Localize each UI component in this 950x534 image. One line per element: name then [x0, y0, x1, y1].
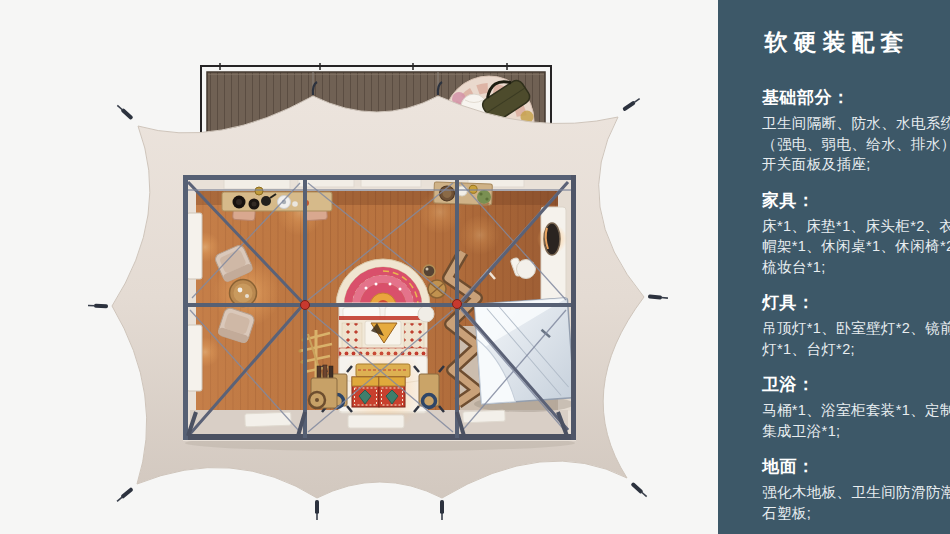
panel-title: 软硬装配套 — [718, 27, 950, 58]
section-line: 梳妆台*1; — [762, 257, 940, 278]
spec-panel: 软硬装配套 基础部分： 卫生间隔断、防水、水电系统 （强电、弱电、给水、排水）、… — [718, 0, 950, 534]
section-line: 强化木地板、卫生间防滑防潮 — [762, 482, 940, 503]
section-line: 马桶*1、浴室柜套装*1、定制 — [762, 400, 940, 421]
section-line: 吊顶灯*1、卧室壁灯*2、镜前 — [762, 318, 940, 339]
section-line: 帽架*1、休闲桌*1、休闲椅*2、 — [762, 236, 940, 257]
shower-enclosure — [475, 298, 575, 404]
hand-mirror — [423, 265, 435, 277]
spec-section-lighting: 灯具： 吊顶灯*1、卧室壁灯*2、镜前 灯*1、台灯*2; — [762, 291, 940, 359]
bed — [322, 259, 444, 432]
section-heading: 地面： — [762, 455, 940, 478]
section-line: 卫生间隔断、防水、水电系统 — [762, 113, 940, 134]
bottles — [317, 365, 333, 379]
spec-section-furniture: 家具： 床*1、床垫*1、床头柜*2、衣 帽架*1、休闲桌*1、休闲椅*2、 梳… — [762, 189, 940, 278]
section-heading: 灯具： — [762, 291, 940, 314]
section-line: （强电、弱电、给水、排水）、 — [762, 134, 940, 155]
section-line: 开关面板及插座; — [762, 154, 940, 175]
section-heading: 基础部分： — [762, 86, 940, 109]
section-line: 石塑板; — [762, 503, 940, 524]
tent-room — [183, 174, 576, 441]
spec-section-flooring: 地面： 强化木地板、卫生间防滑防潮 石塑板; — [762, 455, 940, 523]
section-heading: 卫浴： — [762, 373, 940, 396]
spec-section-basics: 基础部分： 卫生间隔断、防水、水电系统 （强电、弱电、给水、排水）、 开关面板及… — [762, 86, 940, 175]
leisure-table — [230, 280, 257, 307]
floorplan-render — [0, 0, 718, 534]
section-line: 灯*1、台灯*2; — [762, 339, 940, 360]
section-heading: 家具： — [762, 189, 940, 212]
spec-section-bathroom: 卫浴： 马桶*1、浴室柜套装*1、定制 集成卫浴*1; — [762, 373, 940, 441]
section-line: 集成卫浴*1; — [762, 421, 940, 442]
spec-sections: 基础部分： 卫生间隔断、防水、水电系统 （强电、弱电、给水、排水）、 开关面板及… — [762, 86, 940, 523]
section-line: 床*1、床垫*1、床头柜*2、衣 — [762, 216, 940, 237]
pouf — [418, 306, 434, 322]
wheel-chest — [309, 378, 337, 408]
floorplan-svg — [0, 0, 718, 534]
page: 软硬装配套 基础部分： 卫生间隔断、防水、水电系统 （强电、弱电、给水、排水）、… — [0, 0, 950, 534]
